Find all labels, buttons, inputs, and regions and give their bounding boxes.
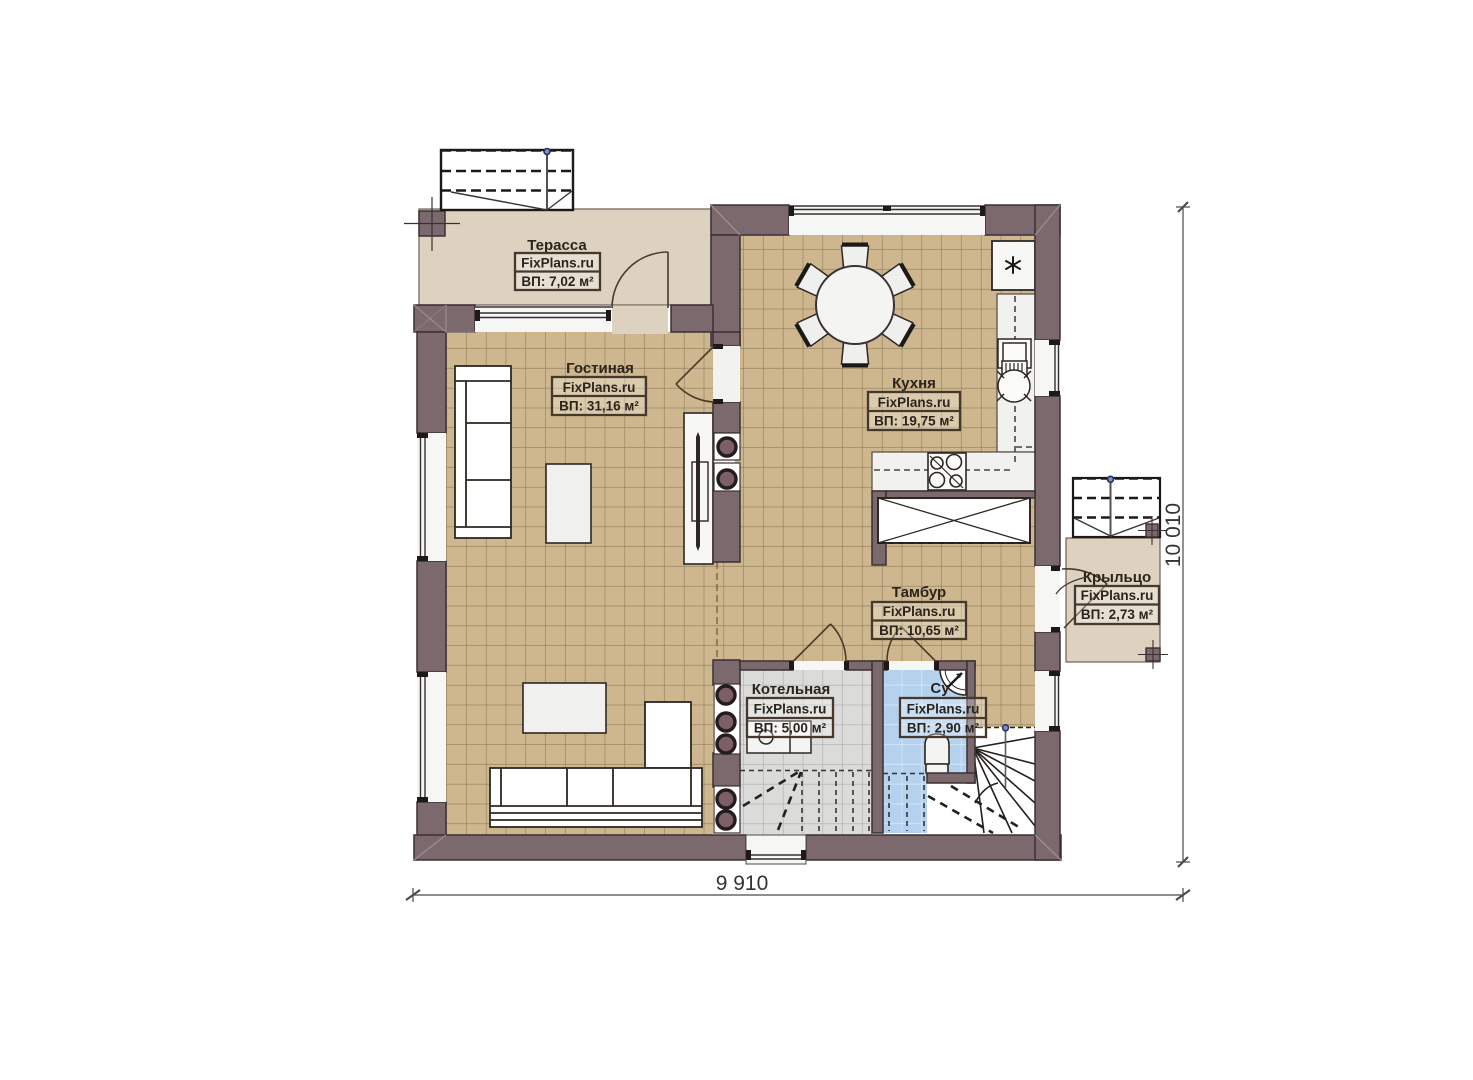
svg-text:FixPlans.ru: FixPlans.ru xyxy=(878,395,951,410)
svg-text:Гостиная: Гостиная xyxy=(566,360,634,377)
svg-text:ВП: 19,75 м²: ВП: 19,75 м² xyxy=(874,414,954,429)
svg-text:Кухня: Кухня xyxy=(892,375,936,392)
svg-text:ВП: 7,02 м²: ВП: 7,02 м² xyxy=(521,274,594,289)
svg-text:Терасса: Терасса xyxy=(527,237,587,254)
svg-text:Тамбур: Тамбур xyxy=(892,584,946,601)
svg-text:FixPlans.ru: FixPlans.ru xyxy=(1081,588,1154,603)
svg-text:ВП: 2,73 м²: ВП: 2,73 м² xyxy=(1081,607,1154,622)
svg-text:FixPlans.ru: FixPlans.ru xyxy=(754,702,827,717)
svg-text:ВП: 31,16 м²: ВП: 31,16 м² xyxy=(559,399,639,414)
svg-text:ВП: 10,65 м²: ВП: 10,65 м² xyxy=(879,623,959,638)
svg-text:Су: Су xyxy=(930,680,950,697)
svg-text:FixPlans.ru: FixPlans.ru xyxy=(521,256,594,271)
svg-text:ВП: 2,90 м²: ВП: 2,90 м² xyxy=(907,721,980,736)
svg-text:FixPlans.ru: FixPlans.ru xyxy=(883,604,956,619)
svg-text:Крыльцо: Крыльцо xyxy=(1083,569,1151,586)
svg-text:FixPlans.ru: FixPlans.ru xyxy=(563,380,636,395)
svg-text:ВП: 5,00 м²: ВП: 5,00 м² xyxy=(754,721,827,736)
svg-text:Котельная: Котельная xyxy=(752,681,831,698)
svg-text:FixPlans.ru: FixPlans.ru xyxy=(907,702,980,717)
svg-text:10 010: 10 010 xyxy=(1162,503,1185,567)
svg-text:9 910: 9 910 xyxy=(716,872,769,895)
